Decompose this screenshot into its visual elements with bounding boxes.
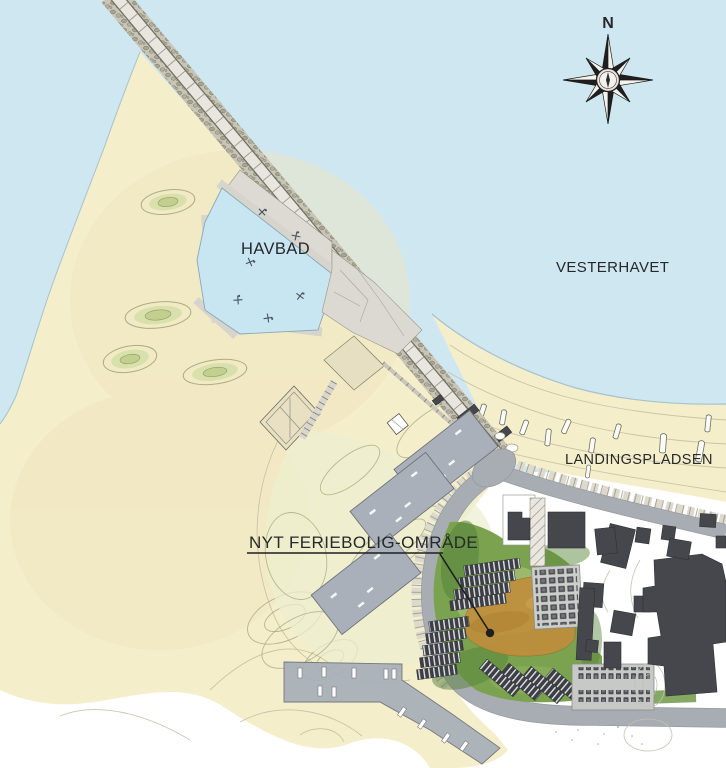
label-landingspladsen: LANDINGSPLADSEN (565, 452, 713, 468)
compass-north-label: N (602, 15, 614, 32)
site-plan-map: N HAVBAD VESTERHAVET LANDINGSPLADSEN NYT… (0, 0, 726, 768)
site-plan-canvas: N HAVBAD VESTERHAVET LANDINGSPLADSEN NYT… (0, 0, 726, 768)
parking-central (531, 565, 582, 629)
label-vesterhavet: VESTERHAVET (556, 259, 669, 276)
annotation-dot (486, 629, 494, 637)
stair-ramp (530, 498, 545, 566)
label-havbad: HAVBAD (241, 240, 310, 258)
label-nyt-bolig-omraade: NYT FERIEBOLIG-OMRÅDE (249, 533, 478, 552)
